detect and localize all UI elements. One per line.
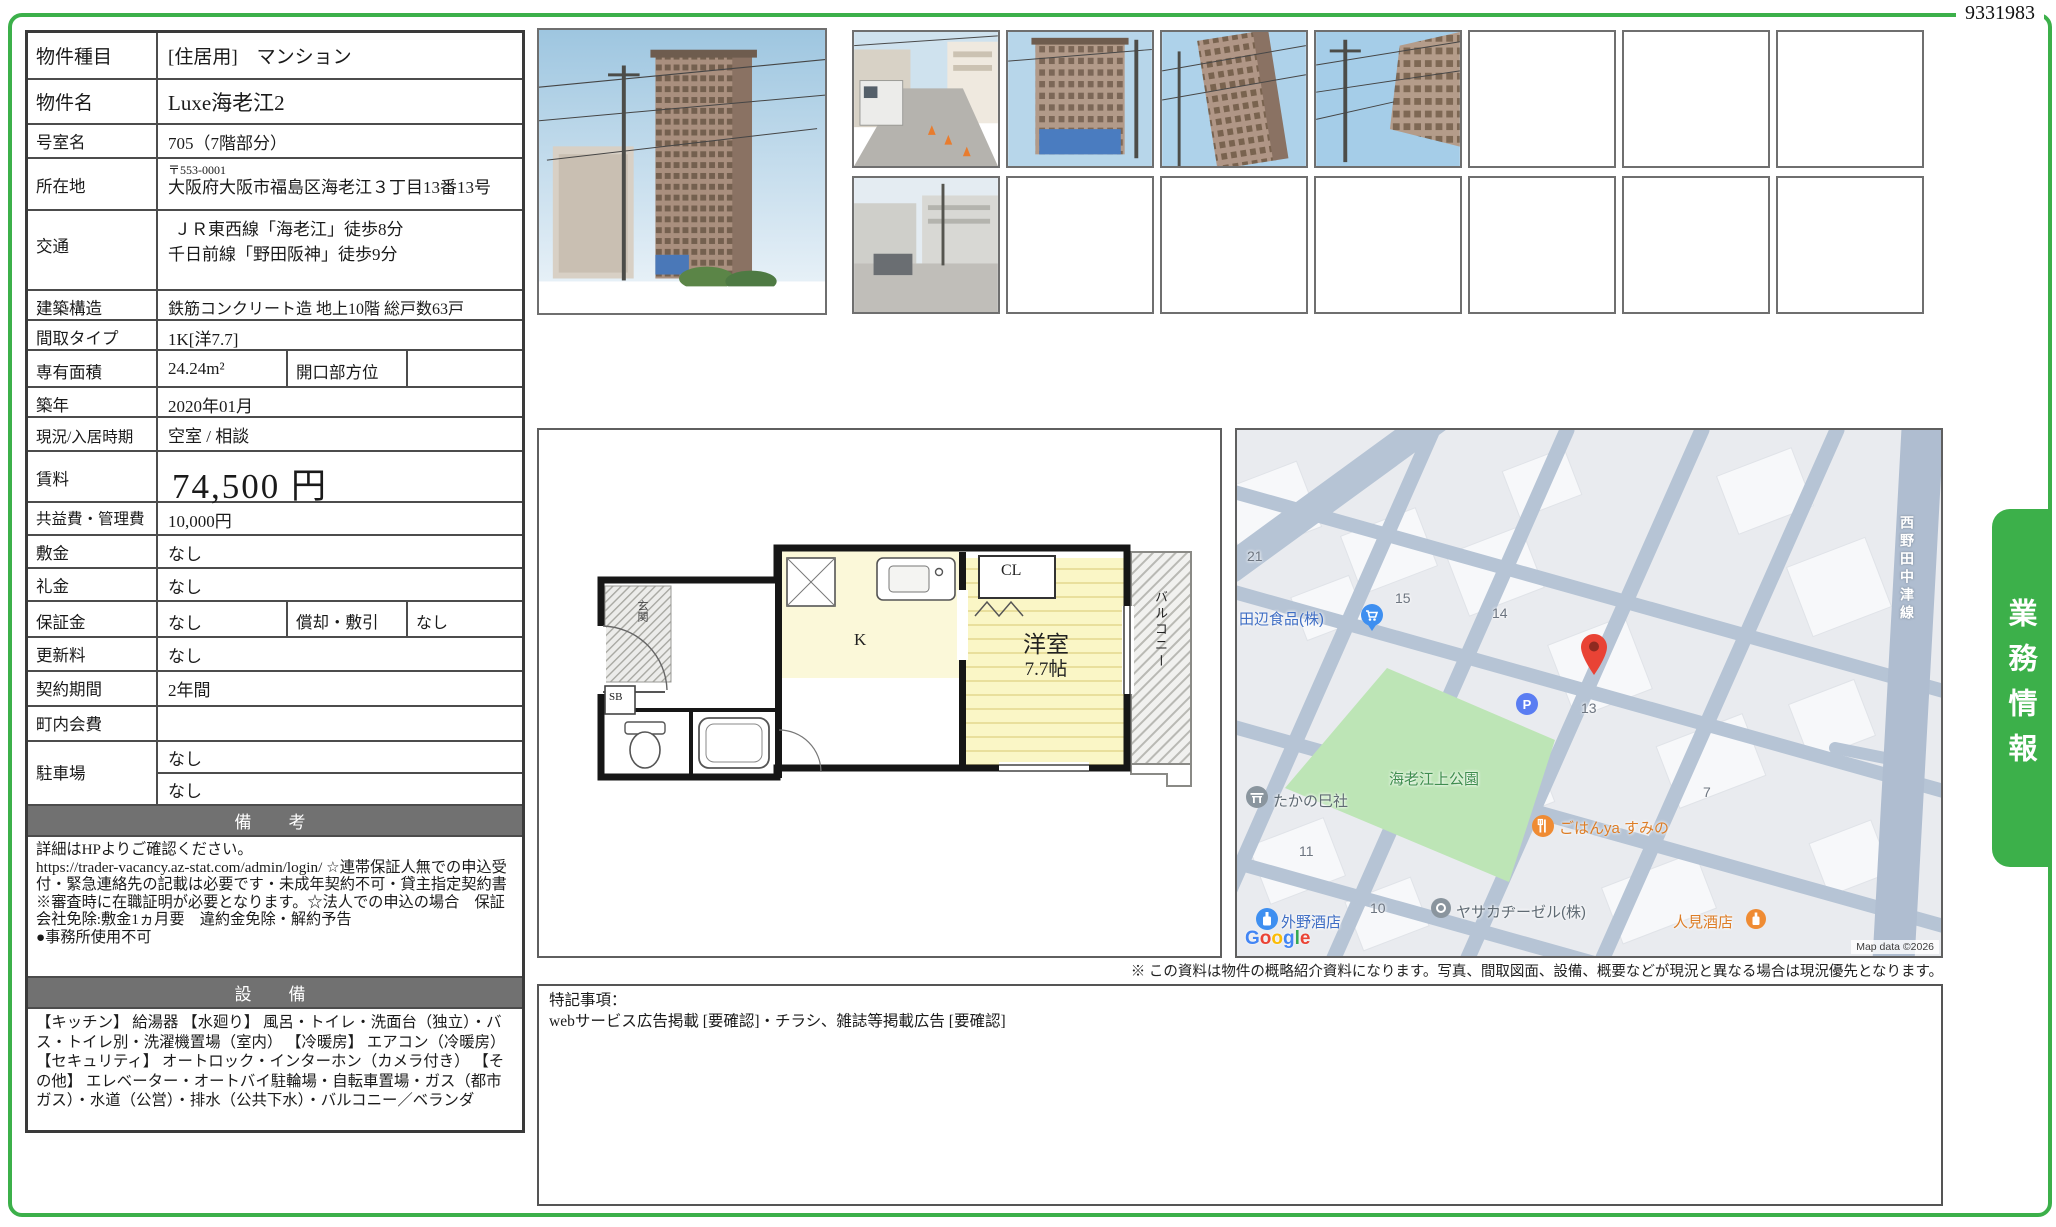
photo-slot-empty bbox=[1776, 30, 1924, 168]
photo-slot-empty bbox=[1006, 176, 1154, 314]
table-row: 町内会費 bbox=[28, 707, 522, 742]
row-label: 物件種目 bbox=[28, 33, 158, 78]
company-pin-icon[interactable] bbox=[1430, 897, 1452, 924]
sub-label: 償却・敷引 bbox=[286, 602, 408, 636]
parking-pin-icon[interactable]: P bbox=[1515, 692, 1539, 721]
svg-text:P: P bbox=[1523, 697, 1532, 712]
row-value: 10,000円 bbox=[158, 503, 522, 534]
remarks-header: 備 考 bbox=[28, 806, 522, 837]
photo-building-tilted bbox=[1160, 30, 1308, 168]
special-notes-box: 特記事項： webサービス広告掲載 [要確認]・チラシ、雑誌等掲載広告 [要確認… bbox=[537, 984, 1943, 1206]
table-row: 号室名 705（7階部分） bbox=[28, 125, 522, 159]
row-label: 交通 bbox=[28, 211, 158, 289]
map-block-number: 13 bbox=[1581, 700, 1597, 716]
parking-value-2: なし bbox=[158, 774, 522, 804]
table-row: 建築構造 鉄筋コンクリート造 地上10階 総戸数63戸 bbox=[28, 291, 522, 321]
row-label: 町内会費 bbox=[28, 707, 158, 740]
table-row: 物件名 Luxe海老江2 bbox=[28, 80, 522, 125]
photo-street-gray bbox=[852, 176, 1000, 314]
map-block-number: 21 bbox=[1247, 548, 1263, 564]
table-row: 賃料 74,500 円 bbox=[28, 452, 522, 503]
photo-slot-empty bbox=[1314, 176, 1462, 314]
map-poi-label[interactable]: ヤサカヂーゼル(株) bbox=[1456, 901, 1586, 922]
row-value: ＪＲ東西線「海老江」徒歩8分 千日前線「野田阪神」徒歩9分 bbox=[158, 211, 522, 289]
table-row: 駐車場 なし なし bbox=[28, 742, 522, 806]
row-value: なし bbox=[158, 536, 522, 567]
table-row: 敷金 なし bbox=[28, 536, 522, 569]
floorplan-kitchen-label: K bbox=[854, 630, 866, 650]
floorplan-closet-label: CL bbox=[1001, 562, 1021, 580]
row-label: 間取タイプ bbox=[28, 321, 158, 349]
map-block-number: 11 bbox=[1299, 843, 1314, 859]
street-photo-illustration bbox=[854, 178, 998, 312]
building-photo-illustration bbox=[1008, 32, 1152, 166]
row-label: 物件名 bbox=[28, 80, 158, 123]
row-label: 号室名 bbox=[28, 125, 158, 157]
restaurant-pin-icon[interactable] bbox=[1531, 814, 1555, 843]
row-value: Luxe海老江2 bbox=[158, 80, 522, 123]
floorplan-size-label: 7.7帖 bbox=[991, 654, 1101, 681]
map-block-number: 10 bbox=[1370, 900, 1386, 916]
row-label: 契約期間 bbox=[28, 672, 158, 705]
google-logo[interactable]: Google bbox=[1245, 928, 1310, 950]
row-label: 専有面積 bbox=[28, 351, 158, 386]
row-value: 空室 / 相談 bbox=[158, 418, 522, 450]
map-poi-label[interactable]: 人見酒店 bbox=[1673, 911, 1733, 932]
floorplan-entrance-label: 玄関 bbox=[634, 600, 650, 622]
row-label: 敷金 bbox=[28, 536, 158, 567]
equipment-text: 【キッチン】 給湯器 【水廻り】 風呂・トイレ・洗面台（独立）・バス・トイレ別・… bbox=[28, 1009, 522, 1130]
row-value: なし bbox=[158, 569, 522, 600]
building-photo-illustration bbox=[1162, 32, 1306, 166]
parking-value-1: なし bbox=[158, 742, 522, 774]
photo-slot-empty bbox=[1622, 30, 1770, 168]
sub-value bbox=[408, 351, 522, 386]
row-label: 建築構造 bbox=[28, 291, 158, 319]
row-value bbox=[158, 707, 522, 740]
table-row: 現況/入居時期 空室 / 相談 bbox=[28, 418, 522, 452]
row-value: 1K[洋7.7] bbox=[158, 321, 522, 349]
photo-slot-empty bbox=[1160, 176, 1308, 314]
sub-value: なし bbox=[408, 602, 522, 636]
table-row: 保証金 なし 償却・敷引 なし bbox=[28, 602, 522, 638]
map-box[interactable]: P 21 15 14 13 11 10 7 田辺食品(株) 海老江上公園 たかの… bbox=[1235, 428, 1943, 958]
row-label: 更新料 bbox=[28, 638, 158, 670]
row-label: 賃料 bbox=[28, 452, 158, 501]
floorplan-sb-label: SB bbox=[609, 691, 622, 703]
map-block-number: 15 bbox=[1395, 590, 1411, 606]
row-value: 〒553-0001 大阪府大阪市福島区海老江３丁目13番13号 bbox=[158, 159, 522, 209]
map-poi-label[interactable]: 田辺食品(株) bbox=[1239, 608, 1324, 629]
liquor-store-pin-icon[interactable] bbox=[1745, 908, 1767, 935]
disclaimer-text: ※ この資料は物件の概略紹介資料になります。写真、間取図面、設備、概要などが現況… bbox=[1000, 960, 1943, 981]
shopping-cart-pin-icon[interactable] bbox=[1359, 602, 1385, 637]
sub-label: 開口部方位 bbox=[286, 351, 408, 386]
floorplan-drawing bbox=[539, 430, 1224, 960]
map-poi-label[interactable]: たかの巳社 bbox=[1273, 790, 1348, 811]
google-logo-letter: o bbox=[1271, 928, 1283, 949]
special-notes-title: 特記事項： bbox=[549, 990, 1931, 1011]
map-block-number: 7 bbox=[1703, 784, 1711, 800]
map-poi-label[interactable]: 海老江上公園 bbox=[1389, 768, 1479, 789]
row-value: なし bbox=[158, 638, 522, 670]
table-row: 築年 2020年01月 bbox=[28, 388, 522, 418]
table-row: 礼金 なし bbox=[28, 569, 522, 602]
transport-line: ＪＲ東西線「海老江」徒歩8分 bbox=[168, 215, 516, 240]
table-row: 共益費・管理費 10,000円 bbox=[28, 503, 522, 536]
transport-line: 千日前線「野田阪神」徒歩9分 bbox=[168, 240, 516, 265]
rent-value: 74,500 円 bbox=[158, 452, 522, 501]
building-photo-illustration bbox=[539, 30, 825, 313]
table-row: 間取タイプ 1K[洋7.7] bbox=[28, 321, 522, 351]
photo-building-front bbox=[1006, 30, 1154, 168]
map-poi-label[interactable]: ごはんya すみの bbox=[1559, 817, 1669, 838]
floorplan-balcony-label: バルコニー bbox=[1151, 590, 1170, 670]
row-value: なし bbox=[158, 602, 286, 636]
row-value: 705（7階部分） bbox=[158, 125, 522, 157]
photo-slot-empty bbox=[1468, 30, 1616, 168]
row-label: 築年 bbox=[28, 388, 158, 416]
equipment-header: 設 備 bbox=[28, 976, 522, 1009]
google-logo-letter: e bbox=[1300, 928, 1311, 949]
shrine-pin-icon[interactable] bbox=[1245, 785, 1269, 814]
photo-building-low-angle bbox=[1314, 30, 1462, 168]
row-value: 2020年01月 bbox=[158, 388, 522, 416]
postal-code: 〒553-0001 bbox=[168, 163, 516, 177]
photo-street bbox=[852, 30, 1000, 168]
property-table: 物件種目 [住居用] マンション 物件名 Luxe海老江2 号室名 705（7階… bbox=[25, 30, 525, 1133]
photo-main-exterior bbox=[537, 28, 827, 315]
map-road-label: 西野田中津線 bbox=[1897, 515, 1917, 623]
row-value: 2年間 bbox=[158, 672, 522, 705]
street-photo-illustration bbox=[854, 32, 998, 166]
google-logo-letter: g bbox=[1283, 928, 1295, 949]
row-label: 駐車場 bbox=[28, 742, 158, 804]
parking-values: なし なし bbox=[158, 742, 522, 804]
table-row: 専有面積 24.24m² 開口部方位 bbox=[28, 351, 522, 388]
row-label: 共益費・管理費 bbox=[28, 503, 158, 534]
row-value: 鉄筋コンクリート造 地上10階 総戸数63戸 bbox=[158, 291, 522, 319]
map-block-number: 14 bbox=[1492, 605, 1508, 621]
table-row: 所在地 〒553-0001 大阪府大阪市福島区海老江３丁目13番13号 bbox=[28, 159, 522, 211]
row-label: 礼金 bbox=[28, 569, 158, 600]
side-tab-business-info[interactable]: 業務情報 bbox=[1992, 509, 2048, 867]
table-row: 物件種目 [住居用] マンション bbox=[28, 33, 522, 80]
photo-slot-empty bbox=[1468, 176, 1616, 314]
photo-slot-empty bbox=[1776, 176, 1924, 314]
building-photo-illustration bbox=[1316, 32, 1460, 166]
photo-slot-empty bbox=[1622, 176, 1770, 314]
row-value: [住居用] マンション bbox=[158, 33, 522, 78]
row-label: 所在地 bbox=[28, 159, 158, 209]
google-logo-letter: G bbox=[1245, 928, 1260, 949]
row-label: 現況/入居時期 bbox=[28, 418, 158, 450]
map-illustration bbox=[1237, 430, 1943, 958]
table-row: 交通 ＪＲ東西線「海老江」徒歩8分 千日前線「野田阪神」徒歩9分 bbox=[28, 211, 522, 291]
side-tab-label: 業務情報 bbox=[1999, 598, 2041, 778]
address-text: 大阪府大阪市福島区海老江３丁目13番13号 bbox=[168, 177, 516, 198]
remarks-text: 詳細はHPよりご確認ください。 https://trader-vacancy.a… bbox=[28, 837, 522, 976]
table-row: 契約期間 2年間 bbox=[28, 672, 522, 707]
special-notes-text: webサービス広告掲載 [要確認]・チラシ、雑誌等掲載広告 [要確認] bbox=[549, 1011, 1931, 1032]
row-label: 保証金 bbox=[28, 602, 158, 636]
google-logo-letter: o bbox=[1260, 928, 1272, 949]
floorplan-box: 洋室 7.7帖 CL K SB 玄関 バルコニー bbox=[537, 428, 1222, 958]
map-attribution: Map data ©2026 bbox=[1851, 940, 1939, 954]
table-row: 更新料 なし bbox=[28, 638, 522, 672]
row-value: 24.24m² bbox=[158, 351, 286, 386]
doc-id: 9331983 bbox=[1958, 2, 2042, 25]
property-location-marker-icon[interactable] bbox=[1579, 633, 1609, 682]
